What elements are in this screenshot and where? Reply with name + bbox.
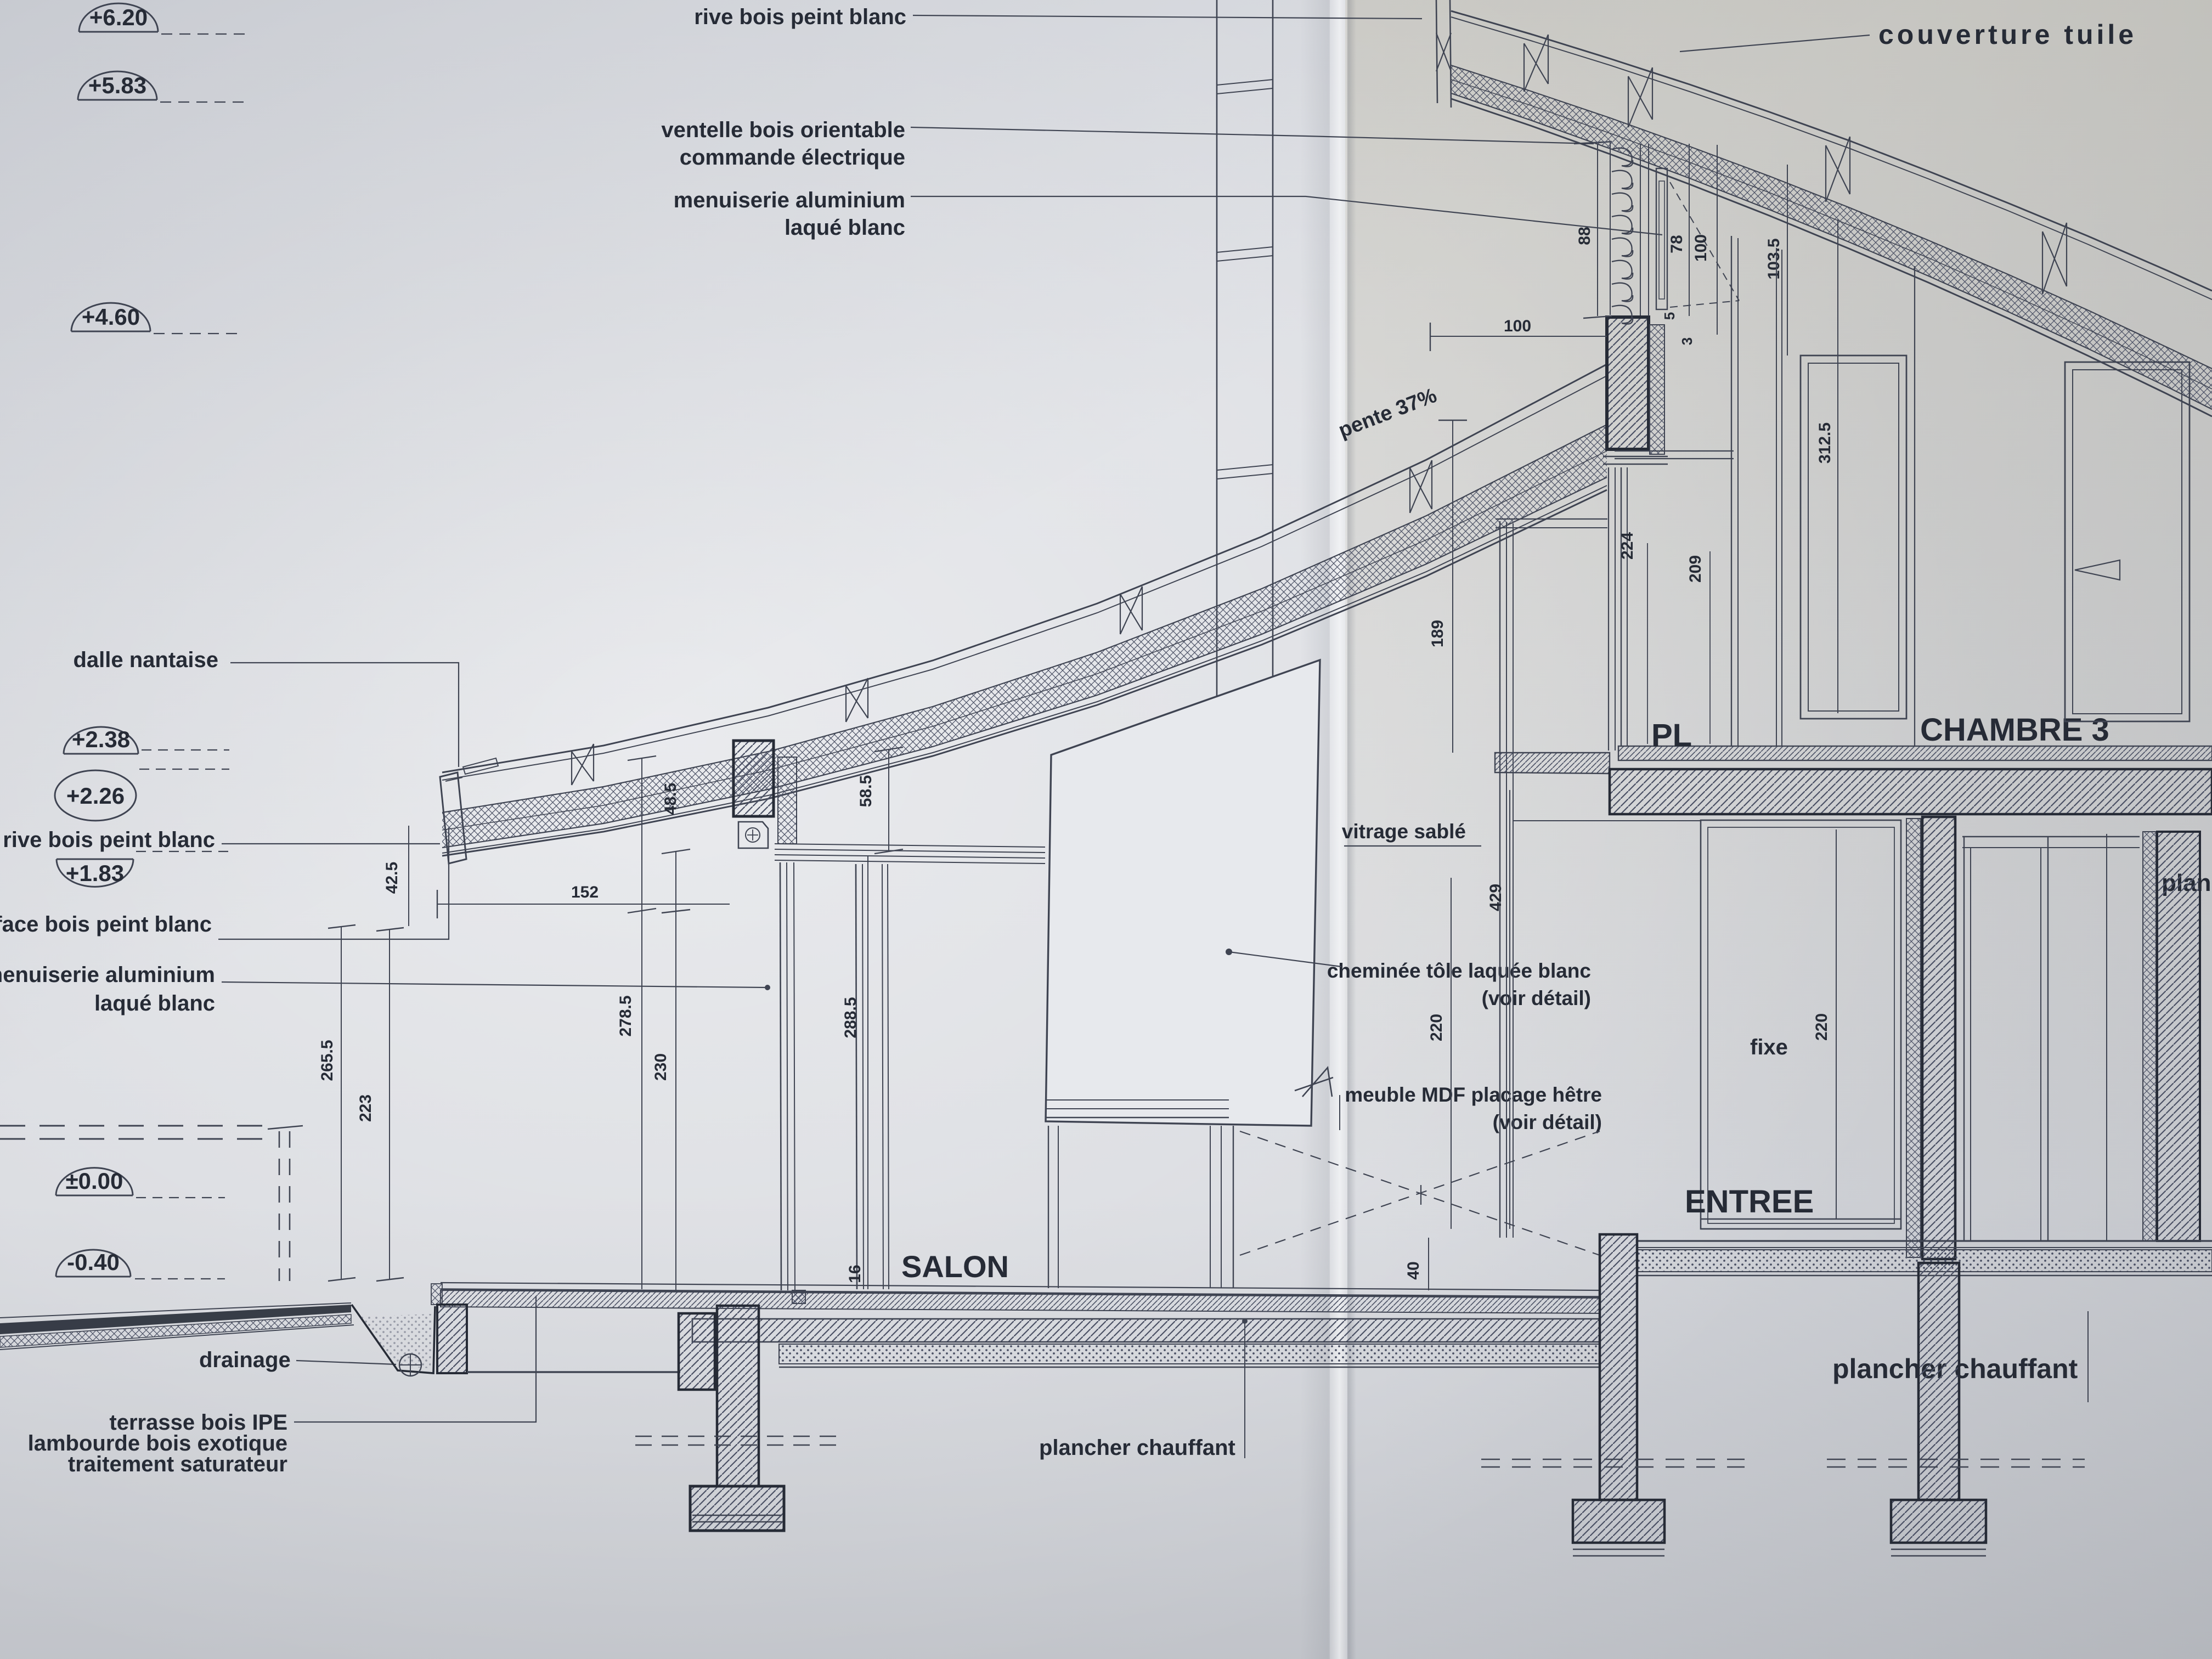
svg-text:SALON: SALON	[901, 1249, 1009, 1284]
svg-text:laqué blanc: laqué blanc	[94, 991, 215, 1015]
svg-text:face bois peint blanc: face bois peint blanc	[0, 912, 212, 936]
svg-text:42.5: 42.5	[383, 862, 401, 894]
svg-text:plancher chauffant: plancher chauffant	[1039, 1436, 1235, 1460]
svg-text:cheminée tôle laquée blanc: cheminée tôle laquée blanc	[1327, 960, 1591, 982]
svg-text:209: 209	[1686, 555, 1705, 583]
svg-text:CHAMBRE 3: CHAMBRE 3	[1920, 712, 2109, 748]
svg-text:ENTREE: ENTREE	[1685, 1184, 1814, 1220]
svg-text:menuiserie aluminium: menuiserie aluminium	[674, 188, 905, 212]
svg-text:(voir détail): (voir détail)	[1482, 987, 1591, 1009]
svg-text:103.5: 103.5	[1765, 238, 1783, 279]
svg-text:+4.60: +4.60	[82, 304, 140, 330]
svg-text:ventelle bois orientable: ventelle bois orientable	[661, 118, 905, 142]
svg-text:fixe: fixe	[1750, 1035, 1788, 1059]
svg-text:(voir détail): (voir détail)	[1493, 1111, 1602, 1133]
svg-text:224: 224	[1618, 532, 1637, 560]
svg-text:16: 16	[846, 1265, 864, 1283]
svg-text:+6.20: +6.20	[89, 4, 148, 30]
svg-text:288.5: 288.5	[842, 997, 860, 1038]
svg-text:dalle nantaise: dalle nantaise	[73, 648, 218, 672]
svg-text:traitement saturateur: traitement saturateur	[68, 1452, 287, 1476]
svg-text:40: 40	[1404, 1261, 1423, 1279]
svg-text:100: 100	[1692, 234, 1710, 262]
svg-text:100: 100	[1504, 317, 1531, 335]
svg-text:278.5: 278.5	[617, 995, 635, 1036]
svg-text:223: 223	[357, 1094, 375, 1122]
svg-text:152: 152	[571, 883, 599, 901]
svg-text:meuble MDF placage hêtre: meuble MDF placage hêtre	[1345, 1084, 1602, 1106]
svg-text:±0.00: ±0.00	[66, 1168, 123, 1194]
svg-text:312.5: 312.5	[1816, 422, 1834, 464]
svg-text:429: 429	[1487, 884, 1505, 911]
svg-text:189: 189	[1429, 620, 1447, 647]
svg-text:drainage: drainage	[199, 1348, 291, 1372]
svg-text:58.5: 58.5	[857, 775, 875, 807]
svg-text:rive bois peint blanc: rive bois peint blanc	[694, 5, 906, 29]
svg-text:-0.40: -0.40	[67, 1249, 120, 1275]
svg-text:230: 230	[652, 1053, 670, 1081]
svg-text:48.5: 48.5	[662, 783, 680, 815]
svg-text:rive bois peint blanc: rive bois peint blanc	[3, 828, 215, 852]
svg-text:265.5: 265.5	[318, 1040, 336, 1081]
svg-text:3: 3	[1679, 337, 1695, 345]
svg-text:+5.83: +5.83	[88, 72, 146, 98]
svg-text:menuiserie aluminium: menuiserie aluminium	[0, 963, 215, 987]
svg-text:78: 78	[1668, 235, 1686, 253]
svg-text:+2.38: +2.38	[72, 726, 130, 752]
svg-text:vitrage sablé: vitrage sablé	[1342, 820, 1466, 843]
svg-text:commande électrique: commande électrique	[680, 145, 905, 170]
svg-text:+2.26: +2.26	[66, 783, 125, 809]
svg-text:220: 220	[1427, 1014, 1446, 1041]
svg-text:couverture tuile: couverture tuile	[1878, 19, 2137, 50]
svg-text:laqué blanc: laqué blanc	[785, 216, 905, 240]
svg-text:5: 5	[1661, 312, 1678, 320]
svg-text:220: 220	[1813, 1013, 1831, 1041]
svg-text:+1.83: +1.83	[66, 860, 124, 886]
svg-text:88: 88	[1576, 227, 1594, 245]
svg-text:PL: PL	[1651, 718, 1692, 753]
